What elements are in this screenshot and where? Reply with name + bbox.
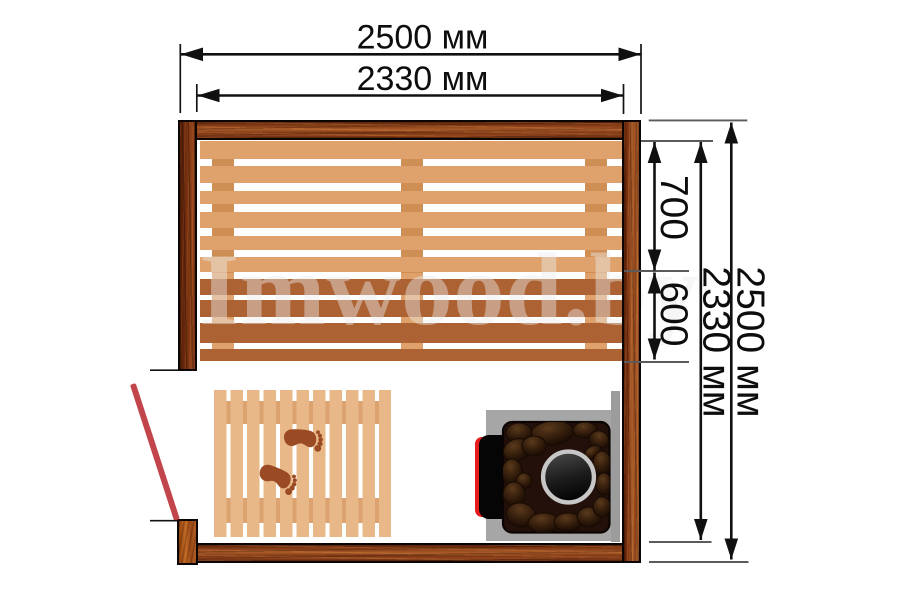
svg-text:600: 600: [652, 281, 695, 346]
svg-text:2500 мм: 2500 мм: [729, 266, 772, 417]
svg-text:2500 мм: 2500 мм: [357, 19, 489, 57]
svg-text:700: 700: [652, 175, 695, 240]
svg-text:2330 мм: 2330 мм: [357, 60, 489, 98]
